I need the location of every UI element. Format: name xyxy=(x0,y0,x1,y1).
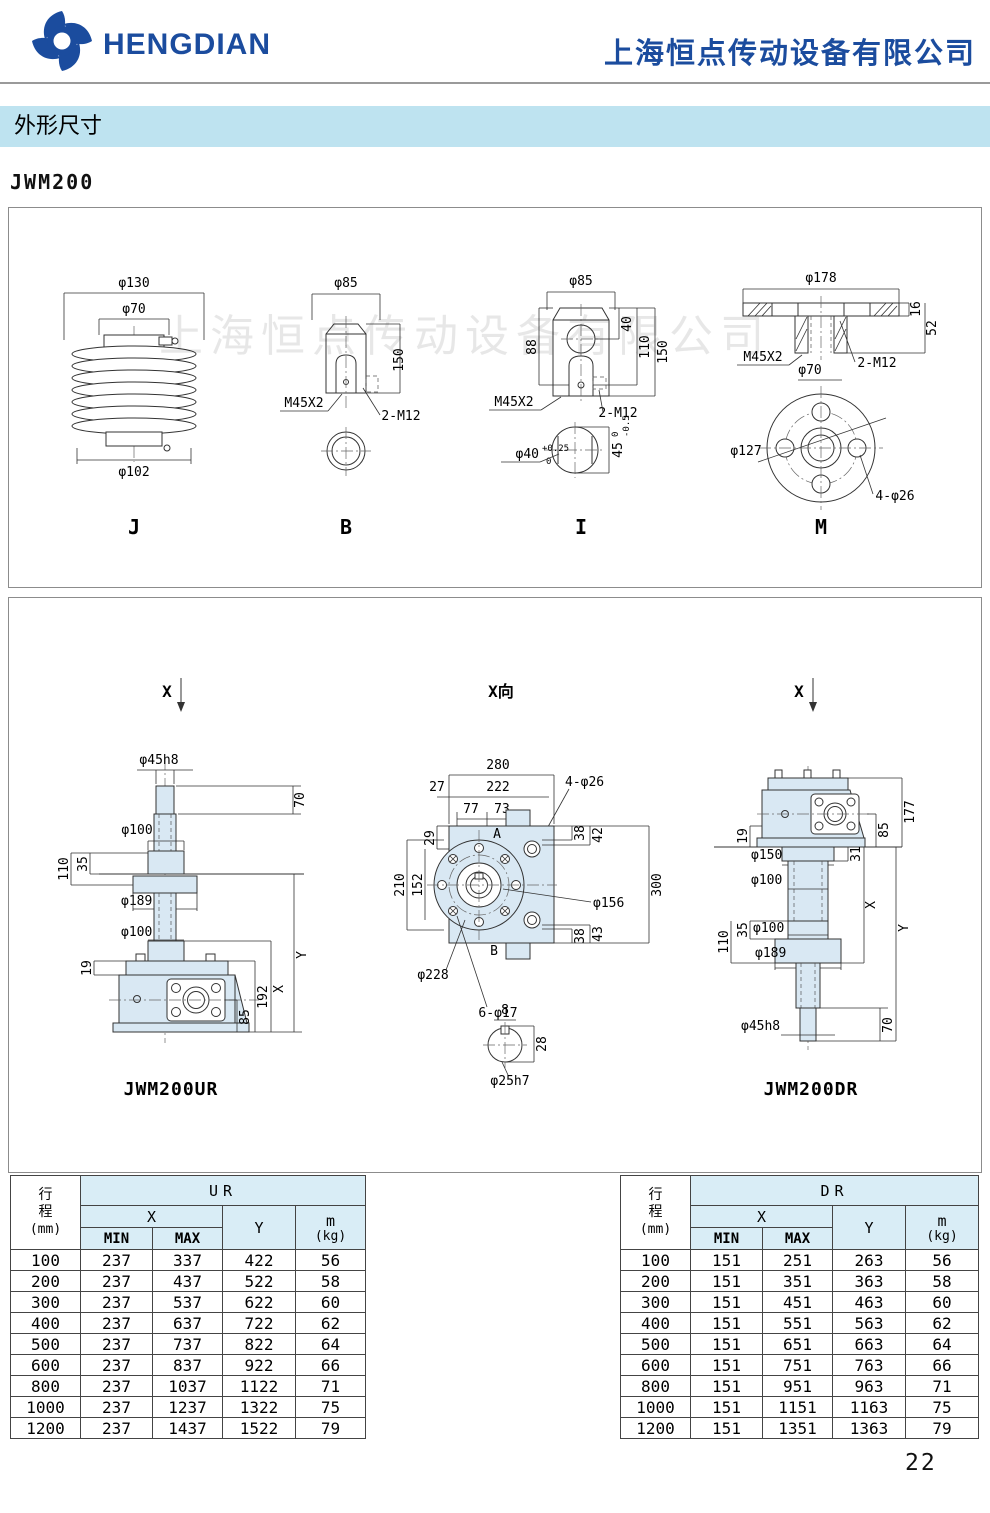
table-cell: 263 xyxy=(833,1250,906,1271)
table-row: 10015125126356 xyxy=(621,1250,979,1271)
table-cell: 200 xyxy=(11,1271,81,1292)
table-cell: 363 xyxy=(833,1271,906,1292)
figure-j-caption: J xyxy=(128,515,140,539)
table-cell: 66 xyxy=(296,1355,366,1376)
hengdian-logo-icon xyxy=(30,8,94,74)
dim-110: 110 xyxy=(638,335,653,358)
dim-35: 35 xyxy=(76,856,91,872)
dim-52: 52 xyxy=(925,320,940,336)
table-cell: 522 xyxy=(223,1271,296,1292)
table-cell: 1437 xyxy=(153,1418,223,1439)
dim-110: 110 xyxy=(57,857,72,880)
dim-phi156: φ156 xyxy=(593,896,624,911)
thread-label: M45X2 xyxy=(284,396,323,411)
table-cell: 60 xyxy=(296,1292,366,1313)
dim-210: 210 xyxy=(393,873,408,896)
min-header: MIN xyxy=(81,1228,153,1250)
table-cell: 637 xyxy=(153,1313,223,1334)
table-cell: 300 xyxy=(11,1292,81,1313)
ur-table-body: 1002373374225620023743752258300237537622… xyxy=(11,1250,366,1439)
x-header: X xyxy=(81,1206,223,1228)
table-cell: 551 xyxy=(763,1313,833,1334)
dim-38-bottom: 38 xyxy=(573,928,588,944)
dim-85: 85 xyxy=(238,1009,253,1025)
table-cell: 79 xyxy=(296,1418,366,1439)
model-label: JWM200 xyxy=(10,170,94,194)
holes-6phi17: 6-φ17 xyxy=(478,1006,517,1021)
unit-drawings-panel: X X向 X φ45h8 70 φ100 xyxy=(8,597,982,1173)
table-cell: 600 xyxy=(621,1355,691,1376)
table-cell: 1522 xyxy=(223,1418,296,1439)
table-cell: 963 xyxy=(833,1376,906,1397)
dim-40: 40 xyxy=(620,316,635,332)
table-cell: 151 xyxy=(691,1250,763,1271)
table-cell: 1363 xyxy=(833,1418,906,1439)
x-header: X xyxy=(691,1206,833,1228)
jwm200dr-caption: JWM200DR xyxy=(764,1079,859,1100)
header-divider xyxy=(0,82,990,84)
figure-j: φ130 φ70 φ102 J xyxy=(64,276,204,539)
dim-45-upper-tol: 0 xyxy=(611,432,621,437)
table-cell: 1122 xyxy=(223,1376,296,1397)
mass-symbol: m xyxy=(326,1212,335,1230)
dim-88: 88 xyxy=(525,339,540,355)
table-cell: 58 xyxy=(296,1271,366,1292)
dr-table-body: 1001512512635620015135136358300151451463… xyxy=(621,1250,979,1439)
table-cell: 151 xyxy=(691,1292,763,1313)
table-cell: 251 xyxy=(763,1250,833,1271)
table-cell: 79 xyxy=(906,1418,979,1439)
view-x-direction-title: X向 xyxy=(488,682,514,701)
table-cell: 151 xyxy=(691,1397,763,1418)
dim-110: 110 xyxy=(717,930,732,953)
dim-70: 70 xyxy=(881,1017,896,1033)
figure-b-caption: B xyxy=(340,515,352,539)
dim-phi40: φ40 xyxy=(516,447,539,462)
table-cell: 837 xyxy=(153,1355,223,1376)
table-cell: 1200 xyxy=(621,1418,691,1439)
dim-222: 222 xyxy=(486,780,509,795)
table-cell: 151 xyxy=(691,1376,763,1397)
table-cell: 500 xyxy=(621,1334,691,1355)
dim-45-lower-tol: -0.5 xyxy=(622,415,632,437)
table-cell: 563 xyxy=(833,1313,906,1334)
stroke-column-header: 行 程 (mm) xyxy=(11,1176,81,1250)
dr-dimension-table: 行 程 (mm) DR X Y m (kg) MIN MAX 100151251… xyxy=(620,1175,979,1439)
dim-phi70: φ70 xyxy=(122,302,145,317)
stroke-unit: (mm) xyxy=(11,1221,80,1238)
table-row: 12001511351136379 xyxy=(621,1418,979,1439)
table-cell: 237 xyxy=(81,1292,153,1313)
table-row: 60023783792266 xyxy=(11,1355,366,1376)
table-cell: 200 xyxy=(621,1271,691,1292)
table-cell: 451 xyxy=(763,1292,833,1313)
mass-unit: (kg) xyxy=(906,1230,978,1243)
dim-152: 152 xyxy=(411,873,426,896)
dim-16: 16 xyxy=(909,301,924,317)
dim-150: 150 xyxy=(392,348,407,371)
table-cell: 1000 xyxy=(621,1397,691,1418)
table-cell: 237 xyxy=(81,1376,153,1397)
dim-phi228: φ228 xyxy=(417,968,448,983)
table-cell: 64 xyxy=(906,1334,979,1355)
table-cell: 337 xyxy=(153,1250,223,1271)
dim-x: X xyxy=(272,985,287,993)
table-cell: 1351 xyxy=(763,1418,833,1439)
dim-phi85: φ85 xyxy=(569,274,592,289)
table-row: 10023733742256 xyxy=(11,1250,366,1271)
table-cell: 237 xyxy=(81,1250,153,1271)
mass-header: m (kg) xyxy=(906,1206,979,1250)
table-cell: 751 xyxy=(763,1355,833,1376)
view-x-label: X xyxy=(794,682,804,701)
dim-phi178: φ178 xyxy=(805,271,836,286)
stroke-char2: 程 xyxy=(621,1204,690,1221)
table-cell: 800 xyxy=(11,1376,81,1397)
table-cell: 66 xyxy=(906,1355,979,1376)
table-cell: 237 xyxy=(81,1418,153,1439)
table-row: 50015165166364 xyxy=(621,1334,979,1355)
table-cell: 437 xyxy=(153,1271,223,1292)
figure-jwm200dr: 19 177 85 φ150 31 φ100 X Y xyxy=(714,766,918,1100)
table-row: 10002371237132275 xyxy=(11,1397,366,1418)
max-header: MAX xyxy=(763,1228,833,1250)
table-cell: 71 xyxy=(296,1376,366,1397)
table-cell: 651 xyxy=(763,1334,833,1355)
dim-70: 70 xyxy=(293,792,308,808)
dim-45: 45 xyxy=(611,442,626,458)
holes-4phi26: 4-φ26 xyxy=(875,489,914,504)
table-cell: 500 xyxy=(11,1334,81,1355)
table-cell: 1322 xyxy=(223,1397,296,1418)
table-cell: 663 xyxy=(833,1334,906,1355)
jwm200ur-caption: JWM200UR xyxy=(124,1079,219,1100)
table-cell: 56 xyxy=(296,1250,366,1271)
dim-phi150: φ150 xyxy=(751,848,782,863)
figure-x-view: 280 222 27 77 73 4-φ26 A B xyxy=(393,758,665,1089)
bellows-shape xyxy=(72,346,196,434)
mass-unit: (kg) xyxy=(296,1230,365,1243)
min-header: MIN xyxy=(691,1228,763,1250)
table-cell: 64 xyxy=(296,1334,366,1355)
table-cell: 351 xyxy=(763,1271,833,1292)
table-cell: 151 xyxy=(691,1313,763,1334)
table-cell: 237 xyxy=(81,1355,153,1376)
section-banner: 外形尺寸 xyxy=(0,106,990,147)
max-header: MAX xyxy=(153,1228,223,1250)
dim-45-tol-group: 45 0 -0.5 xyxy=(611,415,632,458)
dim-192: 192 xyxy=(256,985,271,1008)
unit-drawings: X X向 X φ45h8 70 φ100 xyxy=(9,598,981,1172)
table-cell: 75 xyxy=(296,1397,366,1418)
stroke-unit: (mm) xyxy=(621,1221,690,1238)
dim-8: 8 xyxy=(501,1003,509,1018)
mass-symbol: m xyxy=(937,1212,946,1230)
dim-85: 85 xyxy=(877,822,892,838)
dim-43: 43 xyxy=(591,926,606,942)
table-cell: 622 xyxy=(223,1292,296,1313)
figure-jwm200ur: φ45h8 70 φ100 35 110 φ189 xyxy=(57,753,310,1100)
table-cell: 237 xyxy=(81,1271,153,1292)
table-cell: 100 xyxy=(11,1250,81,1271)
table-cell: 1037 xyxy=(153,1376,223,1397)
dim-phi100-upper: φ100 xyxy=(121,823,152,838)
dim-phi85: φ85 xyxy=(334,276,357,291)
dim-phi127: φ127 xyxy=(730,444,761,459)
dim-38-top: 38 xyxy=(573,825,588,841)
stroke-char1: 行 xyxy=(621,1187,690,1204)
table-cell: 763 xyxy=(833,1355,906,1376)
dim-280: 280 xyxy=(486,758,509,773)
holes-4phi26: 4-φ26 xyxy=(565,775,604,790)
table-cell: 237 xyxy=(81,1313,153,1334)
brand-name: HENGDIAN xyxy=(103,28,271,62)
view-x-label: X xyxy=(162,682,172,701)
table-row: 40023763772262 xyxy=(11,1313,366,1334)
dim-y: Y xyxy=(897,924,912,932)
table-cell: 100 xyxy=(621,1250,691,1271)
dim-19: 19 xyxy=(736,828,751,844)
table-cell: 463 xyxy=(833,1292,906,1313)
table-cell: 151 xyxy=(691,1271,763,1292)
dim-phi100-upper: φ100 xyxy=(751,873,782,888)
dim-phi100-lower: φ100 xyxy=(753,921,784,936)
table-cell: 62 xyxy=(296,1313,366,1334)
dim-phi189: φ189 xyxy=(755,946,786,961)
dim-phi189: φ189 xyxy=(121,894,152,909)
table-cell: 737 xyxy=(153,1334,223,1355)
table-cell: 60 xyxy=(906,1292,979,1313)
dim-150: 150 xyxy=(656,340,671,363)
view-marker-dr: X xyxy=(794,678,817,712)
end-fittings-drawing: φ130 φ70 φ102 J φ85 xyxy=(9,208,981,587)
point-b-label: B xyxy=(490,944,498,959)
figure-i-caption: I xyxy=(575,515,587,539)
dim-phi45h8: φ45h8 xyxy=(139,753,178,768)
dim-phi25h7: φ25h7 xyxy=(490,1074,529,1089)
table-cell: 800 xyxy=(621,1376,691,1397)
group-header-dr: DR xyxy=(691,1176,979,1206)
thread-label: M45X2 xyxy=(743,350,782,365)
table-cell: 422 xyxy=(223,1250,296,1271)
dim-phi130: φ130 xyxy=(118,276,149,291)
stroke-column-header: 行 程 (mm) xyxy=(621,1176,691,1250)
table-cell: 822 xyxy=(223,1334,296,1355)
tap-label: 2-M12 xyxy=(381,409,420,424)
table-cell: 58 xyxy=(906,1271,979,1292)
table-cell: 151 xyxy=(691,1418,763,1439)
table-cell: 56 xyxy=(906,1250,979,1271)
dim-27: 27 xyxy=(429,780,445,795)
table-cell: 600 xyxy=(11,1355,81,1376)
table-row: 20023743752258 xyxy=(11,1271,366,1292)
dim-42: 42 xyxy=(591,827,606,843)
thread-label: M45X2 xyxy=(494,395,533,410)
dim-phi70: φ70 xyxy=(798,363,821,378)
view-marker-ur: X xyxy=(162,678,185,712)
stroke-char2: 程 xyxy=(11,1204,80,1221)
point-a-label: A xyxy=(493,827,501,842)
table-cell: 537 xyxy=(153,1292,223,1313)
dim-y: Y xyxy=(295,951,310,959)
group-header-ur: UR xyxy=(81,1176,366,1206)
dim-19: 19 xyxy=(80,960,95,976)
table-cell: 722 xyxy=(223,1313,296,1334)
table-cell: 75 xyxy=(906,1397,979,1418)
mass-header: m (kg) xyxy=(296,1206,366,1250)
section-title: 外形尺寸 xyxy=(0,106,102,147)
dim-35: 35 xyxy=(736,922,751,938)
page-number: 22 xyxy=(905,1450,937,1476)
table-row: 8002371037112271 xyxy=(11,1376,366,1397)
table-cell: 1151 xyxy=(763,1397,833,1418)
table-row: 12002371437152279 xyxy=(11,1418,366,1439)
stroke-char1: 行 xyxy=(11,1187,80,1204)
table-cell: 951 xyxy=(763,1376,833,1397)
table-cell: 62 xyxy=(906,1313,979,1334)
table-cell: 400 xyxy=(11,1313,81,1334)
dim-77: 77 xyxy=(463,802,479,817)
table-cell: 922 xyxy=(223,1355,296,1376)
dim-x: X xyxy=(864,901,879,909)
table-row: 30023753762260 xyxy=(11,1292,366,1313)
dim-28: 28 xyxy=(535,1036,550,1052)
dim-31: 31 xyxy=(849,846,864,862)
table-cell: 71 xyxy=(906,1376,979,1397)
table-row: 10001511151116375 xyxy=(621,1397,979,1418)
table-row: 40015155156362 xyxy=(621,1313,979,1334)
datasheet-page: HENGDIAN 上海恒点传动设备有限公司 外形尺寸 JWM200 上海恒点传动… xyxy=(0,0,990,1513)
table-cell: 1163 xyxy=(833,1397,906,1418)
table-cell: 400 xyxy=(621,1313,691,1334)
table-cell: 300 xyxy=(621,1292,691,1313)
dim-phi40-upper-tol: +0.25 xyxy=(542,444,569,454)
dim-phi102: φ102 xyxy=(118,465,149,480)
table-cell: 1237 xyxy=(153,1397,223,1418)
figure-b: φ85 150 M45X2 2-M12 B xyxy=(280,276,421,539)
table-row: 30015145146360 xyxy=(621,1292,979,1313)
y-header: Y xyxy=(223,1206,296,1250)
figure-m-caption: M xyxy=(815,515,827,539)
table-cell: 151 xyxy=(691,1355,763,1376)
dim-phi100-lower: φ100 xyxy=(121,925,152,940)
figure-i: φ85 88 40 110 150 M45X2 2-M12 xyxy=(489,274,671,539)
dim-29: 29 xyxy=(423,830,438,846)
table-cell: 237 xyxy=(81,1397,153,1418)
end-fittings-panel: 上海恒点传动设备有限公司 φ130 φ70 φ102 xyxy=(8,207,982,588)
dim-phi45h8: φ45h8 xyxy=(741,1019,780,1034)
ur-dimension-table: 行 程 (mm) UR X Y m (kg) MIN MAX 100237337… xyxy=(10,1175,366,1439)
table-cell: 1000 xyxy=(11,1397,81,1418)
table-row: 20015135136358 xyxy=(621,1271,979,1292)
table-row: 80015195196371 xyxy=(621,1376,979,1397)
table-cell: 237 xyxy=(81,1334,153,1355)
table-cell: 1200 xyxy=(11,1418,81,1439)
table-row: 60015175176366 xyxy=(621,1355,979,1376)
company-name: 上海恒点传动设备有限公司 xyxy=(604,30,976,72)
y-header: Y xyxy=(833,1206,906,1250)
dim-177: 177 xyxy=(903,800,918,823)
figure-m: φ178 16 52 M45X2 φ70 2-M12 xyxy=(730,271,940,539)
table-cell: 151 xyxy=(691,1334,763,1355)
dim-300: 300 xyxy=(650,873,665,896)
table-row: 50023773782264 xyxy=(11,1334,366,1355)
tap-label: 2-M12 xyxy=(857,356,896,371)
